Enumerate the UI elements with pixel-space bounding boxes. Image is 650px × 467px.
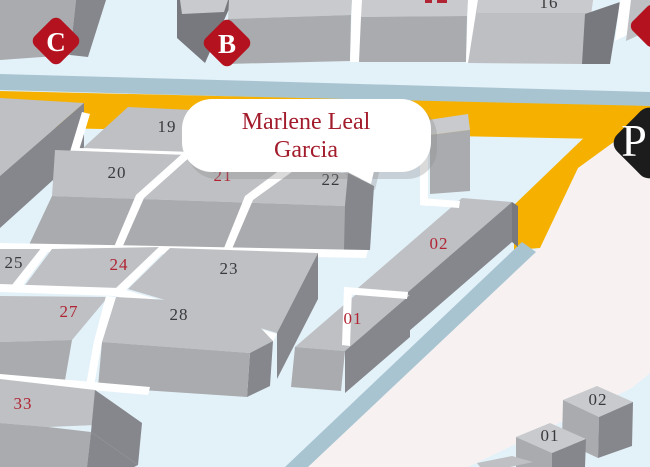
bar-lot-02-label: 02 <box>430 234 449 253</box>
name-callout[interactable]: Marlene Leal Garcia <box>182 99 437 190</box>
isometric-block-map: 16 19 20 21 22 23 24 25 27 28 33 02 01 0… <box>0 0 650 467</box>
lot-28-label: 28 <box>170 305 189 324</box>
marker-p-letter: P <box>621 115 647 166</box>
lot-20-label: 20 <box>108 163 127 182</box>
marker-c-letter: C <box>46 27 66 57</box>
lot-25-label: 25 <box>5 253 24 272</box>
building-block <box>359 16 467 62</box>
block-front <box>291 347 345 391</box>
building-block-top <box>361 0 468 17</box>
block-end <box>512 202 518 247</box>
small-lot-01-label: 01 <box>541 426 560 445</box>
lot-24-label: 24 <box>110 255 129 274</box>
small-lot-02-label: 02 <box>589 390 608 409</box>
callout-name-line1: Marlene Leal <box>242 109 371 135</box>
partial-red-label-mark <box>437 0 447 3</box>
lot-27-label: 27 <box>60 302 79 321</box>
lot-23-label: 23 <box>220 259 239 278</box>
partial-red-label-mark <box>425 0 432 3</box>
lot-33-label: 33 <box>14 394 33 413</box>
building-block-top <box>477 0 593 13</box>
marker-b-letter: B <box>218 29 236 59</box>
lot-16-label: 16 <box>540 0 559 12</box>
lot-19-label: 19 <box>158 117 177 136</box>
callout-name-line2: Garcia <box>274 137 338 163</box>
bar-lot-01-label: 01 <box>344 309 363 328</box>
building-block-top <box>180 0 228 14</box>
